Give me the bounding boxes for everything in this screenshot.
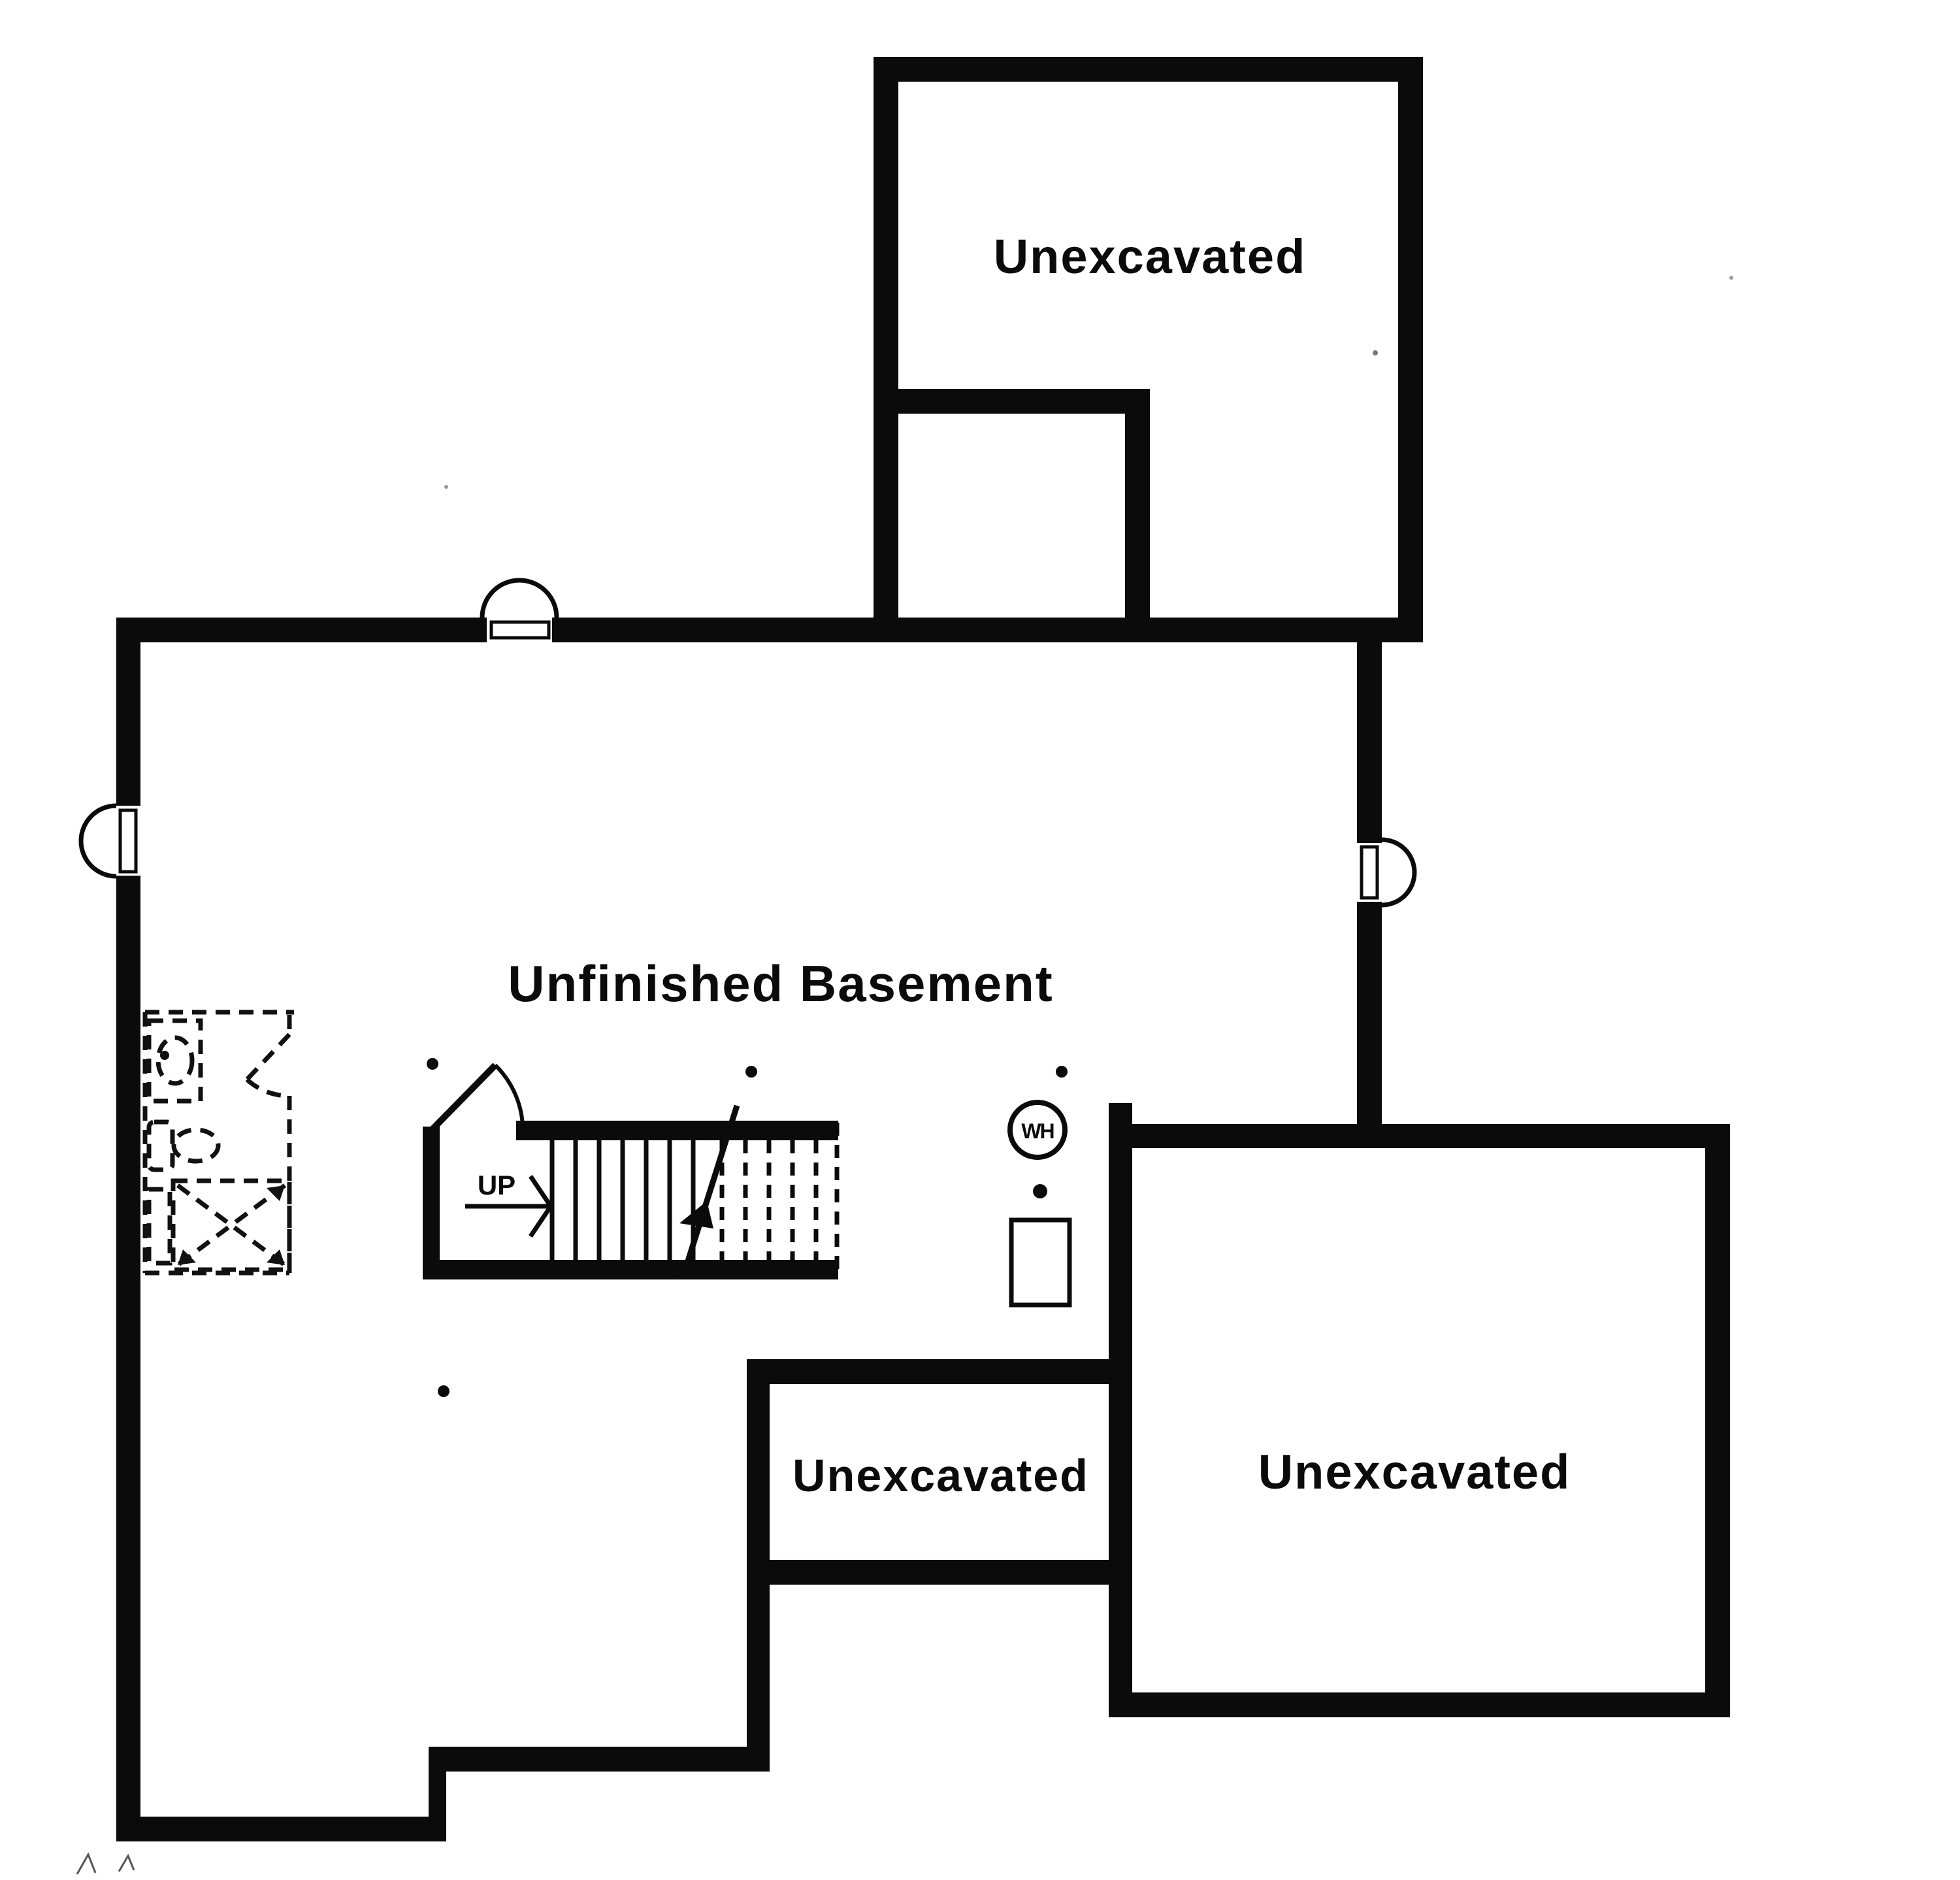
column-dot-icon: [427, 1058, 438, 1070]
floor-drain-icon: [1033, 1184, 1047, 1198]
wall-porch-right: [1125, 389, 1150, 642]
wall-left-upper: [116, 618, 140, 806]
scan-speck: [1373, 350, 1378, 355]
scan-speck: [1729, 276, 1733, 280]
water-heater-label: WH: [1021, 1119, 1053, 1143]
wall-top-room-top: [874, 57, 1423, 82]
top-room-label: Unexcavated: [994, 229, 1307, 284]
wall-main-top-right: [552, 618, 1423, 642]
right-room-label: Unexcavated: [1258, 1445, 1571, 1499]
stair-wall-left: [423, 1127, 440, 1279]
main-basement-label: Unfinished Basement: [508, 955, 1053, 1012]
wall-main-top-left: [116, 618, 487, 642]
column-dot-icon: [745, 1066, 757, 1078]
wall-bigroom-top: [1109, 1124, 1730, 1148]
stair-wall-bottom: [423, 1260, 838, 1279]
paper-background: [0, 0, 1960, 1880]
wall-crawl-top: [747, 1359, 1132, 1384]
scan-speck: [444, 485, 448, 489]
column-dot-icon: [438, 1385, 449, 1397]
stair-wall-top: [516, 1121, 838, 1140]
floor-plan-drawing: UP WH: [0, 0, 1960, 1880]
furnace-icon: [1011, 1220, 1070, 1305]
column-dot-icon: [1056, 1066, 1068, 1078]
water-heater-icon: WH: [1010, 1102, 1065, 1157]
wall-left-lower: [116, 876, 140, 1841]
wall-bottom-middle: [429, 1747, 770, 1772]
crawl-room-label: Unexcavated: [792, 1450, 1089, 1501]
wall-crawl-bottom: [747, 1560, 1132, 1585]
wall-bottom-left: [116, 1817, 446, 1841]
sink-faucet-dot: [160, 1051, 169, 1060]
wall-bigroom-right: [1705, 1124, 1730, 1717]
wall-right-upper: [1357, 642, 1382, 843]
wall-porch-top: [874, 389, 1150, 414]
wall-bigroom-left: [1109, 1103, 1132, 1717]
stairs-up-label: UP: [478, 1170, 515, 1200]
wall-top-room-left: [874, 57, 898, 642]
wall-top-room-right: [1398, 57, 1423, 642]
wall-right-lower: [1357, 902, 1382, 1124]
floor-plan-page: UP WH: [0, 0, 1960, 1880]
wall-bigroom-bottom: [1109, 1692, 1730, 1717]
